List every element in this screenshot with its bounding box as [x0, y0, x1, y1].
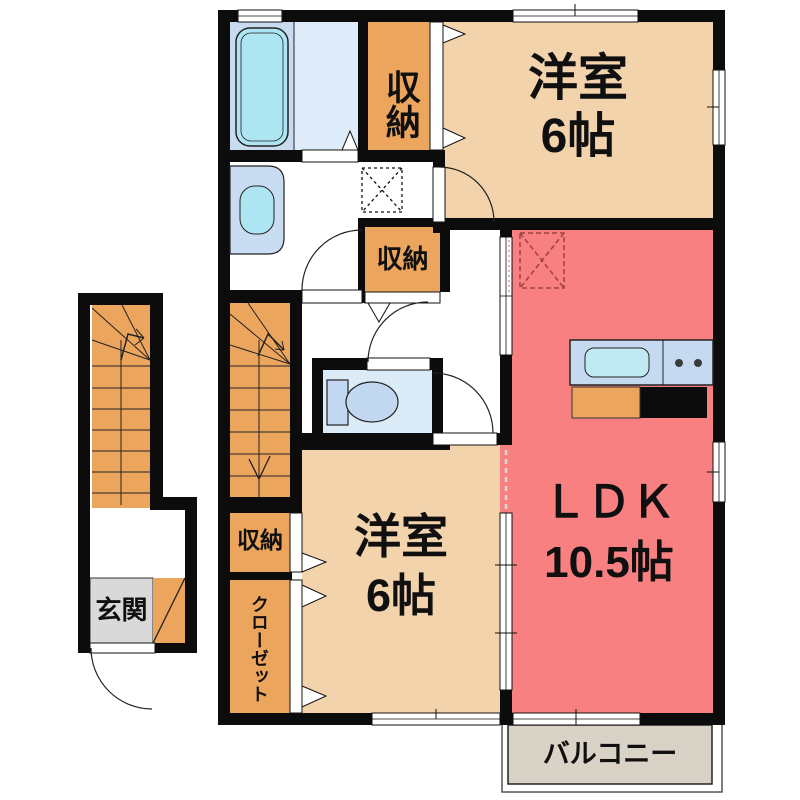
- front-door-arc: [91, 648, 152, 709]
- window-bedroom-upper-top: [513, 4, 638, 22]
- storage-bedroom-label: 収納: [229, 528, 291, 552]
- bedroom-upper-door-gap: [433, 167, 445, 222]
- ldk-name: ＬＤＫ: [505, 480, 713, 526]
- sliding-door-hall-ldk: [500, 237, 512, 355]
- storage-bath-door: [430, 22, 443, 150]
- entrance-label: 玄関: [88, 597, 155, 624]
- toilet-icon: [327, 380, 398, 425]
- bedroom-upper-size: 6帖: [443, 112, 713, 162]
- storage-hall-door: [365, 292, 440, 303]
- front-door-gap: [90, 643, 155, 653]
- bedroom-lower-name: 洋室: [300, 512, 502, 561]
- washbasin-icon: [230, 166, 284, 254]
- floor-plan: 洋室 6帖 ＬＤＫ 10.5帖 洋室 6帖 収納 収納 収納 クローゼット 玄関…: [0, 0, 800, 800]
- ldk-size: 10.5帖: [500, 540, 718, 586]
- ldk-floor: [500, 230, 713, 713]
- closet-label: クローゼット: [249, 586, 268, 712]
- washroom-door-gap: [302, 290, 362, 303]
- bath-door-gap: [302, 150, 358, 162]
- window-bath-top: [238, 10, 282, 22]
- storage-hall-label: 収納: [363, 246, 442, 273]
- balcony-label: バルコニー: [508, 740, 712, 768]
- bedroom-upper-name: 洋室: [443, 52, 713, 105]
- kitchen-cabinet: [572, 387, 640, 418]
- washroom-door-arc: [302, 230, 362, 290]
- ceiling-opening-marker-washroom: [362, 168, 402, 212]
- storage-bath-label: 収納: [381, 54, 418, 154]
- toilet-door-gap: [367, 358, 430, 370]
- bedroom-lower-door-gap: [433, 433, 497, 445]
- internal-staircase-floor: [230, 303, 290, 497]
- bedroom-lower-size: 6帖: [300, 572, 502, 619]
- bathtub-icon: [236, 28, 288, 146]
